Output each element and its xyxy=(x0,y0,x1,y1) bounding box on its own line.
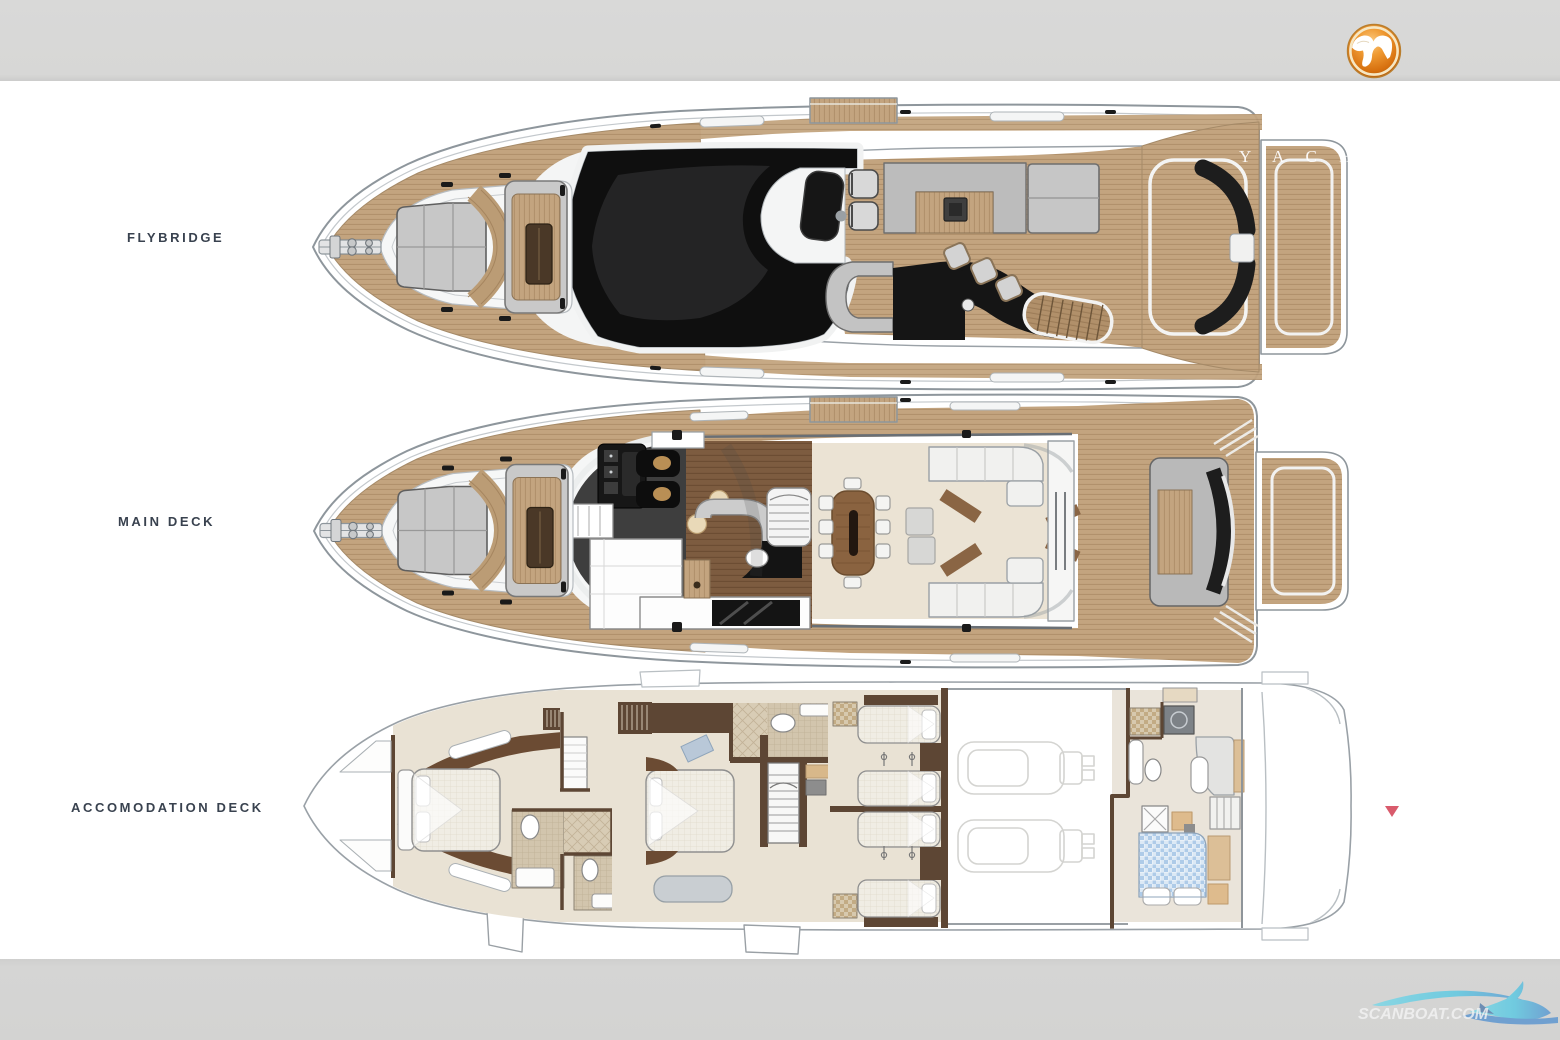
svg-text:Y A C H: Y A C H xyxy=(1239,147,1360,166)
svg-text:SCANBOAT.COM: SCANBOAT.COM xyxy=(1358,1006,1489,1023)
